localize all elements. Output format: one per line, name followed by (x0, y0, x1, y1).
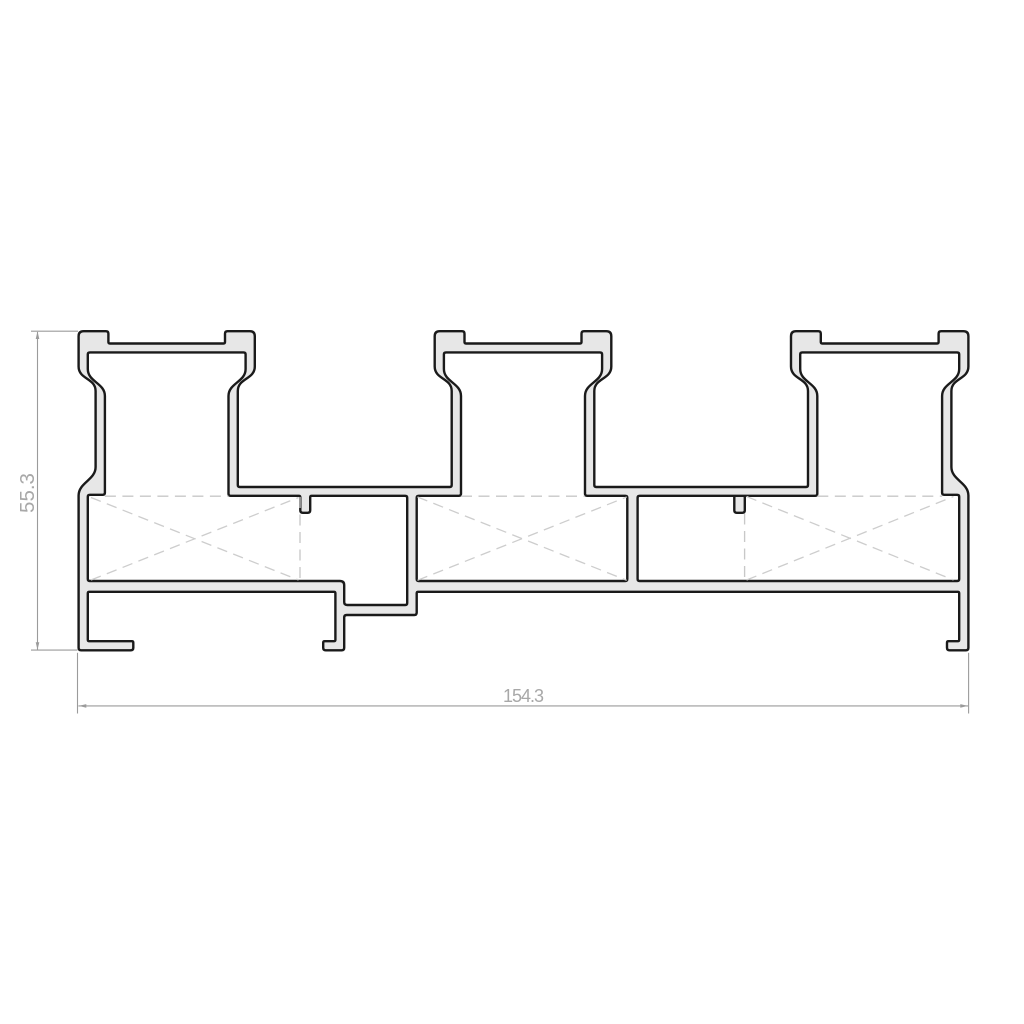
svg-text:55.3: 55.3 (16, 473, 39, 513)
svg-text:154.3: 154.3 (503, 686, 544, 706)
